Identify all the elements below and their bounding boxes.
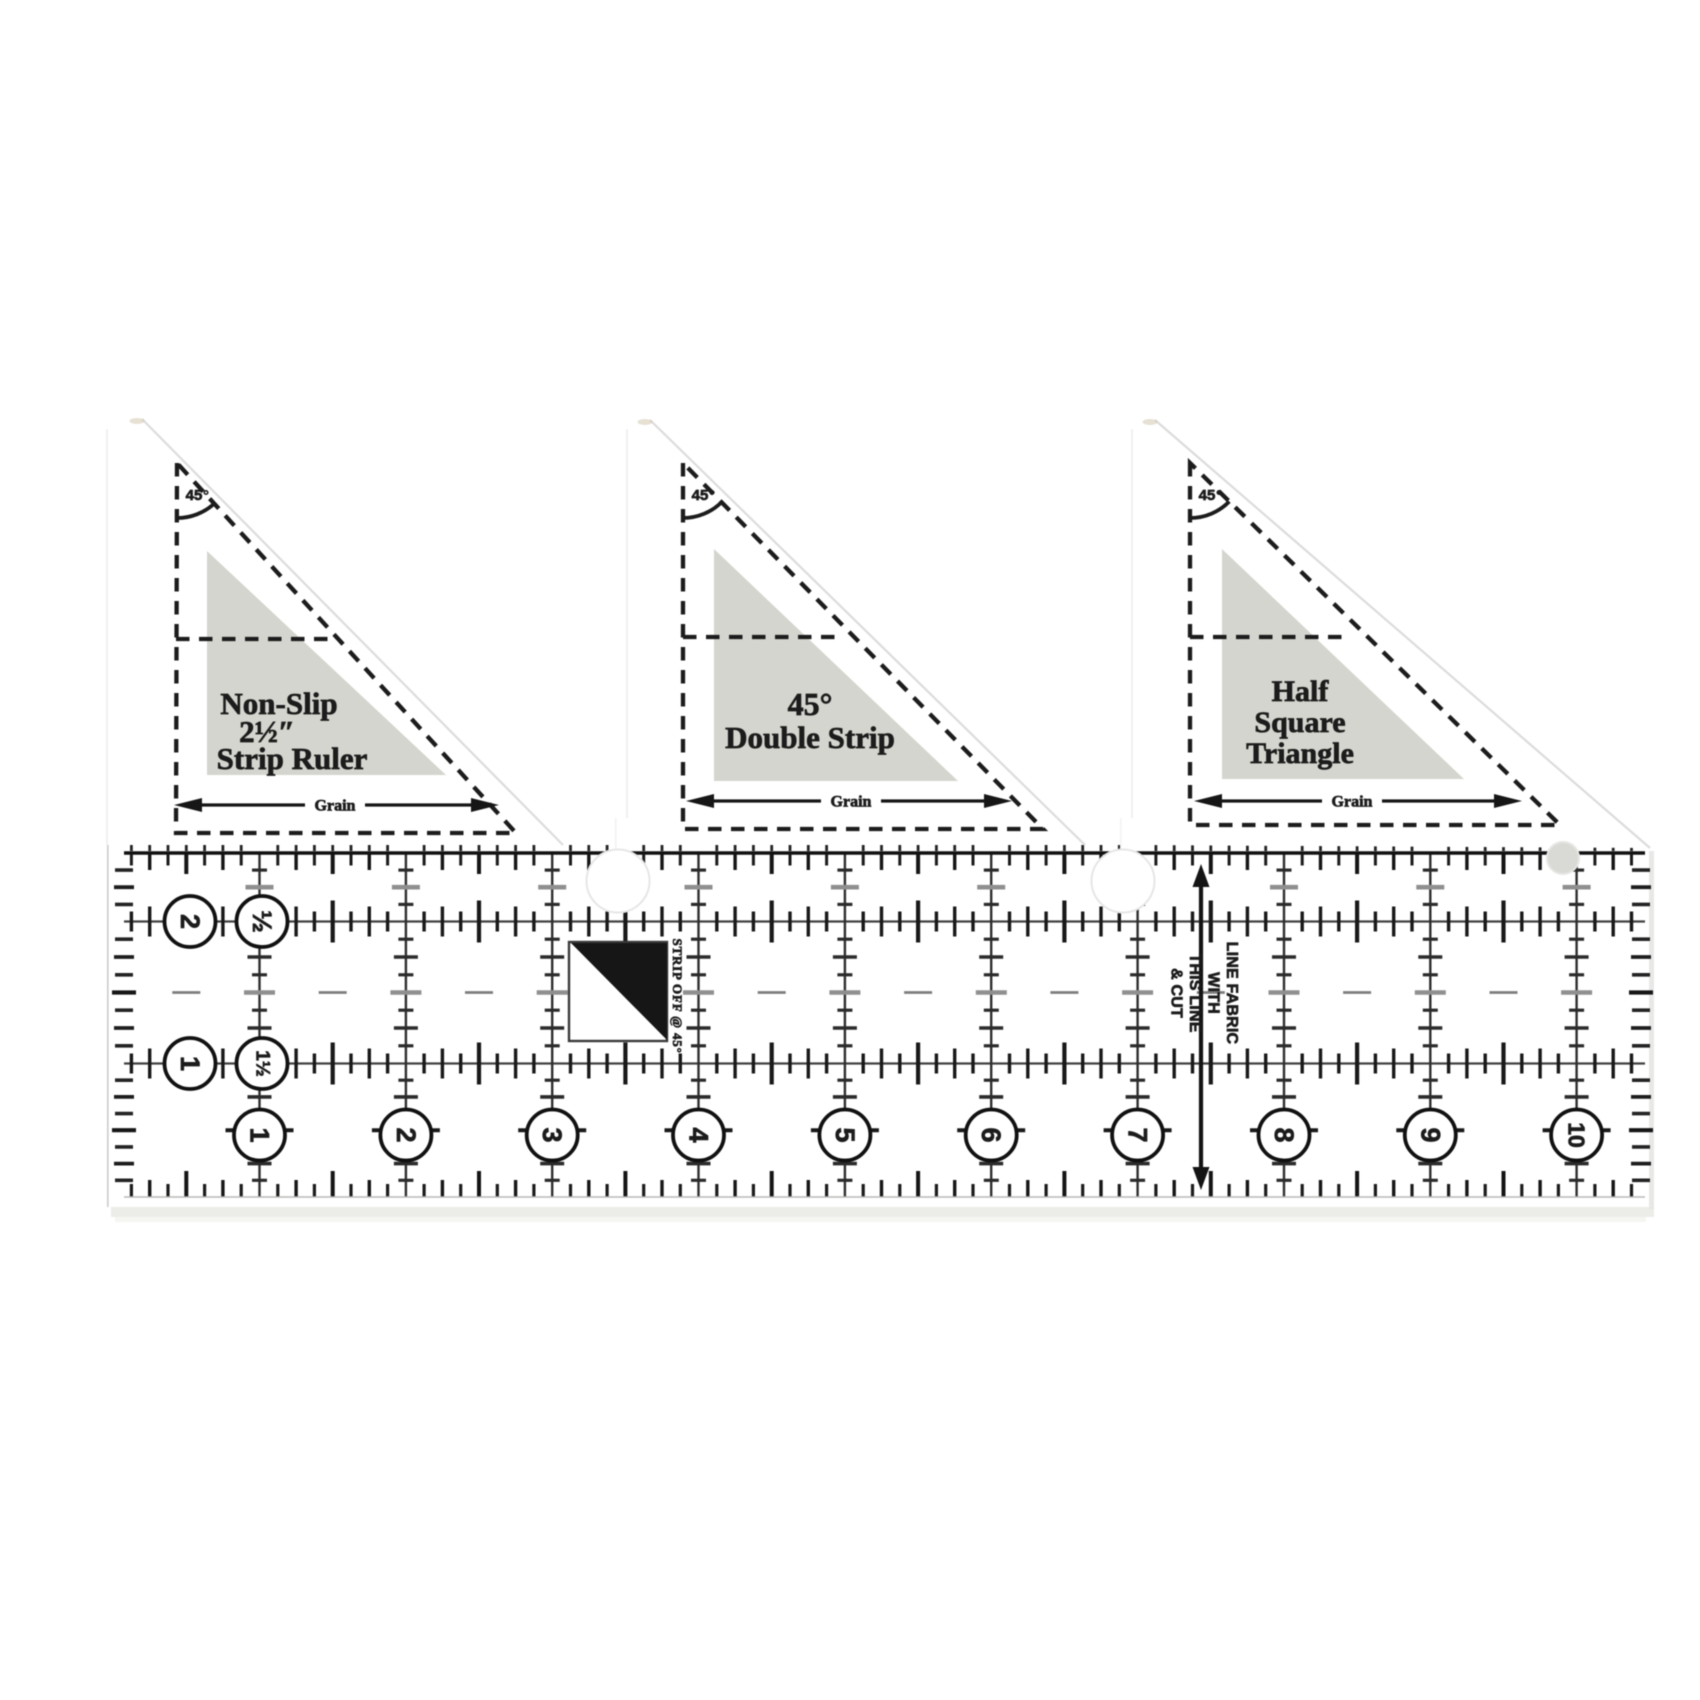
svg-text:6: 6 bbox=[976, 1127, 1006, 1142]
svg-text:LINE FABRIC: LINE FABRIC bbox=[1223, 942, 1240, 1045]
svg-text:Half: Half bbox=[1272, 675, 1330, 708]
svg-text:& CUT: & CUT bbox=[1168, 968, 1185, 1018]
svg-text:5: 5 bbox=[830, 1127, 860, 1142]
svg-text:Grain: Grain bbox=[1332, 794, 1373, 811]
svg-text:7: 7 bbox=[1123, 1127, 1153, 1142]
svg-text:Square: Square bbox=[1254, 706, 1345, 739]
svg-text:9: 9 bbox=[1415, 1127, 1445, 1142]
svg-text:4: 4 bbox=[684, 1127, 714, 1142]
svg-text:2: 2 bbox=[175, 914, 205, 929]
svg-text:1: 1 bbox=[245, 1127, 275, 1142]
svg-text:Grain: Grain bbox=[831, 794, 872, 811]
svg-text:45: 45 bbox=[692, 487, 709, 504]
svg-text:WITH: WITH bbox=[1205, 972, 1222, 1014]
svg-text:THIS LINE: THIS LINE bbox=[1186, 953, 1203, 1032]
svg-text:45: 45 bbox=[186, 487, 203, 504]
svg-text:Strip Ruler: Strip Ruler bbox=[217, 741, 368, 776]
svg-text:Triangle: Triangle bbox=[1246, 737, 1354, 770]
svg-text:3: 3 bbox=[537, 1127, 567, 1142]
svg-text:½: ½ bbox=[247, 910, 277, 933]
svg-text:Grain: Grain bbox=[315, 798, 356, 815]
svg-text:1½: 1½ bbox=[252, 1050, 273, 1076]
svg-text:45°: 45° bbox=[788, 686, 833, 722]
svg-text:STRIP OFF @ 45°: STRIP OFF @ 45° bbox=[670, 938, 685, 1053]
svg-text:1: 1 bbox=[175, 1056, 205, 1071]
svg-text:2: 2 bbox=[391, 1127, 421, 1142]
svg-text:8: 8 bbox=[1269, 1127, 1299, 1142]
svg-text:10: 10 bbox=[1564, 1122, 1590, 1148]
svg-text:45: 45 bbox=[1199, 487, 1216, 504]
svg-text:Double Strip: Double Strip bbox=[725, 720, 895, 755]
